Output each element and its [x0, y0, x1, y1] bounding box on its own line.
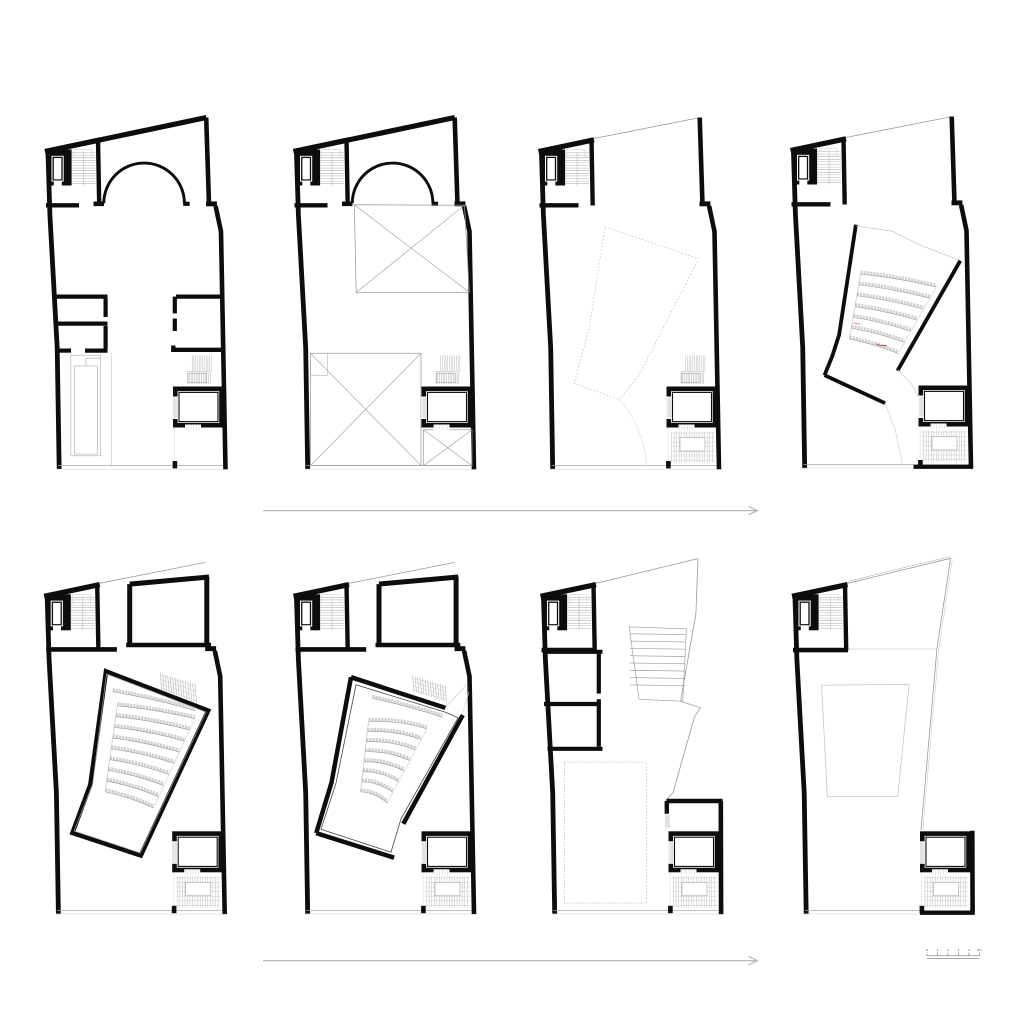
svg-text:5m: 5m [977, 948, 982, 952]
